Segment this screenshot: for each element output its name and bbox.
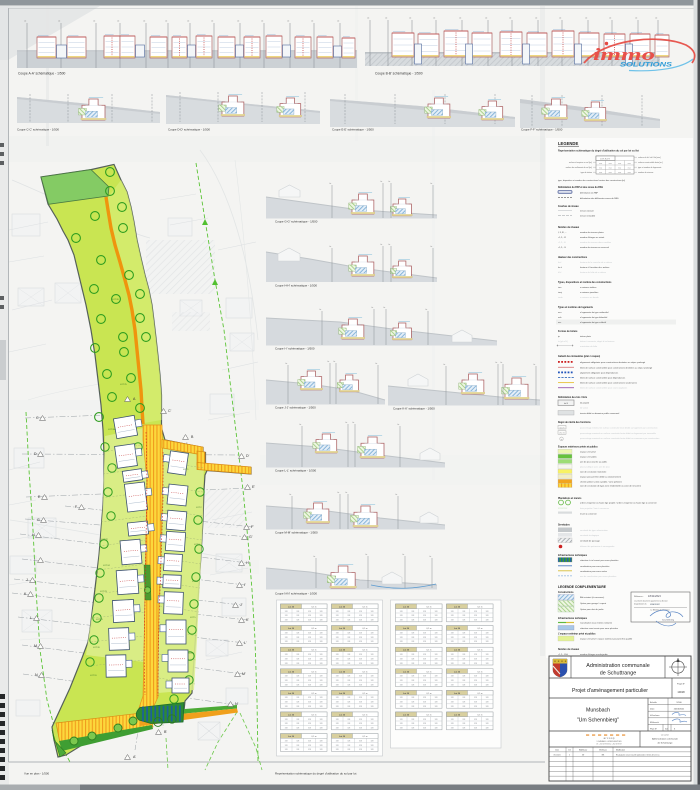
svg-text:328: 328 bbox=[320, 654, 323, 656]
svg-text:328: 328 bbox=[423, 680, 426, 682]
svg-text:Infrastructures techniques: Infrastructures techniques bbox=[558, 617, 588, 620]
svg-text:328: 328 bbox=[296, 745, 299, 747]
svg-text:6,5 m: 6,5 m bbox=[362, 607, 367, 609]
svg-text:terrain remodelé: terrain remodelé bbox=[580, 215, 596, 218]
svg-text:328: 328 bbox=[320, 676, 323, 678]
svg-text:328: 328 bbox=[435, 684, 438, 686]
svg-text:max: max bbox=[618, 172, 621, 174]
svg-text:Date: Date bbox=[555, 749, 559, 752]
svg-text:espace pouvant être dédié au s: espace pouvant être dédié au stationneme… bbox=[580, 476, 621, 479]
svg-text:LOT 22: LOT 22 bbox=[101, 539, 109, 541]
svg-text:328: 328 bbox=[320, 702, 323, 704]
svg-text:328: 328 bbox=[400, 620, 403, 622]
svg-text:328: 328 bbox=[308, 676, 311, 678]
svg-text:Coupe K-K' schématique - 1/500: Coupe K-K' schématique - 1/500 bbox=[393, 407, 435, 411]
svg-text:328: 328 bbox=[320, 684, 323, 686]
svg-text:328: 328 bbox=[347, 723, 350, 725]
svg-text:328: 328 bbox=[423, 637, 426, 639]
svg-text:délimitation du PAP: délimitation du PAP bbox=[580, 192, 599, 195]
svg-text:328: 328 bbox=[462, 723, 465, 725]
svg-text:328: 328 bbox=[308, 697, 311, 699]
svg-text:x% | x%: x% | x% bbox=[559, 433, 565, 435]
svg-text:328: 328 bbox=[400, 684, 403, 686]
svg-text:terrain existant: terrain existant bbox=[580, 210, 594, 213]
svg-text:328: 328 bbox=[347, 684, 350, 686]
svg-text:LOT 6: LOT 6 bbox=[188, 653, 194, 655]
svg-text:328: 328 bbox=[451, 728, 454, 730]
svg-text:328: 328 bbox=[451, 676, 454, 678]
svg-text:328: 328 bbox=[320, 611, 323, 613]
svg-text:I: I bbox=[34, 558, 35, 562]
svg-text:328: 328 bbox=[411, 728, 414, 730]
svg-text:328: 328 bbox=[347, 676, 350, 678]
svg-text:328: 328 bbox=[359, 745, 362, 747]
svg-text:328: 328 bbox=[285, 684, 288, 686]
svg-text:328: 328 bbox=[285, 620, 288, 622]
svg-text:Formes de toiture: Formes de toiture bbox=[558, 330, 578, 333]
svg-text:328: 328 bbox=[336, 706, 339, 708]
svg-text:Coupe D-D' schématique - 1/500: Coupe D-D' schématique - 1/500 bbox=[168, 128, 210, 132]
svg-text:328: 328 bbox=[451, 680, 454, 682]
svg-text:328: 328 bbox=[486, 620, 489, 622]
svg-text:328: 328 bbox=[411, 615, 414, 617]
svg-text:6,5 m: 6,5 m bbox=[426, 671, 431, 673]
svg-text:LOT 4: LOT 4 bbox=[192, 581, 198, 583]
svg-text:328: 328 bbox=[451, 620, 454, 622]
svg-text:Coupe I-I' schématique - 1/500: Coupe I-I' schématique - 1/500 bbox=[275, 347, 315, 351]
svg-text:Lot 26: Lot 26 bbox=[288, 735, 295, 738]
svg-text:chemin piéton / piste cyclable: chemin piéton / piste cyclable / zone pi… bbox=[580, 481, 623, 484]
svg-text:Coupe N-N' schématique - 1/500: Coupe N-N' schématique - 1/500 bbox=[275, 592, 317, 596]
svg-text:6,5 m: 6,5 m bbox=[311, 715, 316, 717]
svg-text:K': K' bbox=[246, 618, 249, 622]
svg-text:6,5 m: 6,5 m bbox=[362, 693, 367, 695]
svg-text:LOT 24: LOT 24 bbox=[103, 565, 111, 567]
svg-text:328: 328 bbox=[285, 706, 288, 708]
svg-text:L': L' bbox=[244, 641, 247, 645]
svg-text:328: 328 bbox=[486, 706, 489, 708]
svg-text:limite de surface constructibl: limite de surface constructible pour con… bbox=[580, 366, 653, 369]
svg-text:328: 328 bbox=[400, 723, 403, 725]
svg-text:axe de canalisation pour eaux: axe de canalisation pour eaux pluviales bbox=[580, 575, 616, 578]
svg-text:328: 328 bbox=[308, 641, 311, 643]
svg-text:328: 328 bbox=[347, 740, 350, 742]
svg-text:328: 328 bbox=[296, 641, 299, 643]
svg-text:328: 328 bbox=[435, 615, 438, 617]
svg-text:328: 328 bbox=[347, 749, 350, 751]
svg-text:328: 328 bbox=[474, 611, 477, 613]
svg-text:6,5 m: 6,5 m bbox=[426, 693, 431, 695]
svg-text:328: 328 bbox=[451, 663, 454, 665]
svg-text:"Um Schennbierg": "Um Schennbierg" bbox=[577, 718, 619, 724]
svg-text:328: 328 bbox=[371, 706, 374, 708]
svg-text:328: 328 bbox=[435, 663, 438, 665]
svg-text:328: 328 bbox=[359, 702, 362, 704]
svg-text:Lot 26: Lot 26 bbox=[339, 627, 346, 630]
svg-text:6,5 m: 6,5 m bbox=[362, 736, 367, 738]
svg-text:328: 328 bbox=[423, 723, 426, 725]
svg-text:328: 328 bbox=[371, 680, 374, 682]
svg-text:XXXXXXX: XXXXXXX bbox=[558, 508, 568, 510]
svg-text:328: 328 bbox=[308, 611, 311, 613]
svg-text:328: 328 bbox=[474, 615, 477, 617]
svg-text:surface de scellement du sol [: surface de scellement du sol [m²] bbox=[566, 166, 593, 169]
svg-text:328: 328 bbox=[435, 697, 438, 699]
svg-text:328: 328 bbox=[462, 654, 465, 656]
svg-text:328: 328 bbox=[462, 697, 465, 699]
svg-text:328: 328 bbox=[462, 615, 465, 617]
svg-text:Délimitation des lots / îlots: Délimitation des lots / îlots bbox=[558, 396, 588, 399]
svg-text:328: 328 bbox=[462, 641, 465, 643]
svg-text:328: 328 bbox=[474, 719, 477, 721]
svg-text:max: max bbox=[618, 163, 621, 165]
svg-text:328: 328 bbox=[451, 637, 454, 639]
svg-text:328: 328 bbox=[451, 719, 454, 721]
svg-text:328: 328 bbox=[347, 632, 350, 634]
svg-text:328: 328 bbox=[320, 706, 323, 708]
svg-text:328: 328 bbox=[347, 697, 350, 699]
svg-text:328: 328 bbox=[486, 702, 489, 704]
svg-text:328: 328 bbox=[423, 697, 426, 699]
svg-text:328: 328 bbox=[435, 676, 438, 678]
svg-text:328: 328 bbox=[474, 684, 477, 686]
svg-text:328: 328 bbox=[336, 702, 339, 704]
svg-text:328: 328 bbox=[462, 728, 465, 730]
svg-text:328: 328 bbox=[359, 697, 362, 699]
svg-text:nombre d'étages en retrait: nombre d'étages en retrait bbox=[580, 236, 605, 239]
svg-text:Types, dispositions et nombre: Types, dispositions et nombre des constr… bbox=[558, 281, 612, 284]
svg-text:x maisons en bande: x maisons en bande bbox=[580, 297, 599, 299]
svg-text:6,5 m: 6,5 m bbox=[426, 628, 431, 630]
svg-text:toiture à versants, degré d in: toiture à versants, degré d inclinaison bbox=[580, 340, 615, 343]
svg-text:nombre de niveaux dans combles: nombre de niveaux dans combles bbox=[580, 241, 611, 244]
svg-text:Lot 26: Lot 26 bbox=[339, 670, 346, 673]
svg-text:328: 328 bbox=[371, 697, 374, 699]
svg-text:328: 328 bbox=[411, 658, 414, 660]
svg-text:328: 328 bbox=[371, 615, 374, 617]
svg-text:ts (y/x x%): ts (y/x x%) bbox=[558, 340, 568, 343]
svg-text:limite de surface constructibl: limite de surface constructible pour dép… bbox=[580, 377, 625, 380]
svg-text:6,5 m: 6,5 m bbox=[311, 671, 316, 673]
svg-text:328: 328 bbox=[296, 620, 299, 622]
svg-text:Lot 26: Lot 26 bbox=[454, 692, 461, 695]
svg-text:Lot 26: Lot 26 bbox=[288, 606, 295, 609]
svg-text:328: 328 bbox=[423, 620, 426, 622]
svg-text:de Schuttrange: de Schuttrange bbox=[600, 671, 637, 677]
svg-text:Lot 26: Lot 26 bbox=[339, 649, 346, 652]
svg-text:Gabarit des immeubles (plan /: Gabarit des immeubles (plan / coupes) bbox=[558, 355, 600, 358]
svg-text:328: 328 bbox=[451, 611, 454, 613]
svg-text:328: 328 bbox=[371, 745, 374, 747]
svg-text:Coupe E-E' schématique - 1/500: Coupe E-E' schématique - 1/500 bbox=[332, 128, 374, 132]
svg-text:lot projeté: lot projeté bbox=[580, 402, 590, 405]
svg-text:328: 328 bbox=[296, 654, 299, 656]
svg-text:servitude de type urbanisation: servitude de type urbanisation bbox=[580, 529, 609, 532]
svg-text:328: 328 bbox=[296, 676, 299, 678]
svg-text:328: 328 bbox=[296, 749, 299, 751]
svg-text:328: 328 bbox=[411, 702, 414, 704]
svg-text:Ind: Ind bbox=[665, 728, 668, 730]
svg-text:x maisons isolées: x maisons isolées bbox=[580, 287, 596, 289]
svg-text:328: 328 bbox=[359, 723, 362, 725]
svg-text:lot voisin: lot voisin bbox=[580, 407, 589, 410]
svg-text:328: 328 bbox=[359, 632, 362, 634]
svg-text:6,5 m: 6,5 m bbox=[362, 650, 367, 652]
svg-text:328: 328 bbox=[320, 749, 323, 751]
svg-text:328: 328 bbox=[400, 615, 403, 617]
svg-text:Vue en plan - 1/500: Vue en plan - 1/500 bbox=[24, 772, 50, 776]
svg-text:328: 328 bbox=[462, 658, 465, 660]
svg-text:Lot 26: Lot 26 bbox=[288, 692, 295, 695]
svg-text:nombre de niveaux pleins: nombre de niveaux pleins bbox=[580, 231, 604, 234]
svg-text:328: 328 bbox=[435, 641, 438, 643]
svg-text:328: 328 bbox=[411, 663, 414, 665]
svg-text:min x%: min x% bbox=[560, 427, 566, 429]
svg-text:M: M bbox=[34, 644, 37, 648]
svg-text:328: 328 bbox=[474, 723, 477, 725]
svg-text:Délimitation du PAP et des zon: Délimitation du PAP et des zones du PAG bbox=[558, 186, 603, 189]
svg-text:pourcentage maximal en surface: pourcentage maximal en surface construit… bbox=[580, 432, 657, 435]
svg-text:x=c: x=c bbox=[558, 322, 561, 324]
svg-text:D': D' bbox=[246, 454, 250, 458]
svg-text:328: 328 bbox=[359, 615, 362, 617]
svg-text:I, II, III, ...: I, II, III, ... bbox=[558, 232, 567, 234]
svg-text:x logements de type unifamilia: x logements de type unifamilial bbox=[580, 311, 609, 314]
svg-text:328: 328 bbox=[400, 706, 403, 708]
svg-text:328: 328 bbox=[435, 654, 438, 656]
svg-text:rétention sous terrain pour ea: rétention sous terrain pour eaux pluvial… bbox=[580, 627, 618, 630]
svg-text:Lot 26: Lot 26 bbox=[288, 714, 295, 717]
svg-text:328: 328 bbox=[347, 702, 350, 704]
svg-text:328: 328 bbox=[423, 684, 426, 686]
svg-text:328: 328 bbox=[451, 632, 454, 634]
svg-text:328: 328 bbox=[285, 723, 288, 725]
svg-text:328: 328 bbox=[411, 676, 414, 678]
svg-text:J': J' bbox=[240, 603, 243, 607]
svg-text:Lot 26: Lot 26 bbox=[454, 670, 461, 673]
svg-text:328: 328 bbox=[371, 719, 374, 721]
svg-text:328: 328 bbox=[285, 719, 288, 721]
svg-text:max: max bbox=[618, 168, 621, 170]
svg-text:328: 328 bbox=[296, 728, 299, 730]
svg-text:328: 328 bbox=[296, 702, 299, 704]
svg-text:328: 328 bbox=[411, 684, 414, 686]
svg-text:328: 328 bbox=[296, 684, 299, 686]
svg-text:328: 328 bbox=[336, 697, 339, 699]
svg-text:6,5 m: 6,5 m bbox=[477, 715, 482, 717]
svg-text:+1,2,...R: +1,2,...R bbox=[558, 237, 566, 239]
svg-text:nombre de niveaux en sous-sol: nombre de niveaux en sous-sol bbox=[580, 246, 609, 249]
svg-text:Lot 26: Lot 26 bbox=[339, 714, 346, 717]
svg-text:328: 328 bbox=[486, 728, 489, 730]
svg-text:328: 328 bbox=[359, 658, 362, 660]
svg-text:Coupe G-G' schématique - 1/500: Coupe G-G' schématique - 1/500 bbox=[275, 220, 318, 224]
svg-text:pourcentage minimal en surface: pourcentage minimal en surface construit… bbox=[580, 427, 658, 430]
svg-text:LOT /ILOT: LOT /ILOT bbox=[600, 159, 610, 161]
svg-text:lot N: lot N bbox=[564, 402, 569, 405]
svg-text:328: 328 bbox=[308, 663, 311, 665]
svg-text:Bâti existant (à conserver): Bâti existant (à conserver) bbox=[580, 596, 604, 599]
svg-text:328: 328 bbox=[336, 676, 339, 678]
svg-text:type de toiture: type de toiture bbox=[581, 171, 592, 174]
svg-text:328: 328 bbox=[486, 697, 489, 699]
svg-text:6,5 m: 6,5 m bbox=[311, 693, 316, 695]
svg-text:328: 328 bbox=[308, 706, 311, 708]
svg-text:328: 328 bbox=[400, 663, 403, 665]
svg-text:D: D bbox=[34, 452, 37, 456]
svg-text:328: 328 bbox=[320, 697, 323, 699]
svg-text:328: 328 bbox=[474, 620, 477, 622]
svg-text:LOT 25: LOT 25 bbox=[120, 384, 128, 386]
svg-text:328: 328 bbox=[320, 719, 323, 721]
svg-text:328: 328 bbox=[474, 706, 477, 708]
svg-text:Courbes de niveau: Courbes de niveau bbox=[558, 206, 579, 208]
svg-text:hauteur du faîte de x mètres: hauteur du faîte de x mètres bbox=[580, 271, 606, 274]
svg-text:Coupe B-B' schématique - 1/500: Coupe B-B' schématique - 1/500 bbox=[375, 72, 423, 76]
svg-text:H: H bbox=[32, 533, 35, 537]
svg-text:orientation du faîte: orientation du faîte bbox=[580, 345, 598, 348]
svg-text:328: 328 bbox=[285, 745, 288, 747]
svg-text:328: 328 bbox=[336, 728, 339, 730]
svg-text:place publique avec aire de je: place publique avec aire de jeux bbox=[580, 466, 611, 469]
svg-text:328: 328 bbox=[400, 676, 403, 678]
svg-text:type et nombre de logements: type et nombre de logements bbox=[638, 166, 661, 169]
svg-text:328: 328 bbox=[285, 654, 288, 656]
svg-text:328: 328 bbox=[347, 745, 350, 747]
svg-text:328: 328 bbox=[474, 676, 477, 678]
svg-text:6,5 m: 6,5 m bbox=[477, 671, 482, 673]
svg-text:328: 328 bbox=[359, 706, 362, 708]
svg-text:328: 328 bbox=[320, 632, 323, 634]
svg-text:servitude écologique: servitude écologique bbox=[580, 534, 600, 537]
svg-text:328: 328 bbox=[423, 615, 426, 617]
svg-text:328: 328 bbox=[308, 749, 311, 751]
svg-text:328: 328 bbox=[411, 611, 414, 613]
svg-text:328: 328 bbox=[336, 654, 339, 656]
svg-text:328: 328 bbox=[435, 632, 438, 634]
svg-text:328: 328 bbox=[462, 611, 465, 613]
svg-text:6,5 m: 6,5 m bbox=[362, 628, 367, 630]
svg-text:328: 328 bbox=[320, 663, 323, 665]
svg-text:328: 328 bbox=[336, 719, 339, 721]
svg-text:328: 328 bbox=[347, 728, 350, 730]
svg-text:328: 328 bbox=[486, 658, 489, 660]
svg-text:328: 328 bbox=[285, 680, 288, 682]
svg-text:toiture plate: toiture plate bbox=[580, 335, 592, 338]
svg-text:LOT 20: LOT 20 bbox=[93, 647, 101, 649]
svg-text:328: 328 bbox=[400, 702, 403, 704]
svg-text:328: 328 bbox=[359, 749, 362, 751]
svg-text:6,5 m: 6,5 m bbox=[311, 628, 316, 630]
svg-text:6,5 m: 6,5 m bbox=[311, 650, 316, 652]
svg-text:328: 328 bbox=[320, 637, 323, 639]
svg-text:28/4/2022: 28/4/2022 bbox=[649, 603, 661, 606]
svg-text:328: 328 bbox=[347, 641, 350, 643]
svg-text:6,5 m: 6,5 m bbox=[311, 607, 316, 609]
svg-text:328: 328 bbox=[320, 740, 323, 742]
svg-text:328: 328 bbox=[296, 723, 299, 725]
svg-text:Canalisation eaux mixtes exist: Canalisation eaux mixtes existante bbox=[580, 622, 613, 625]
svg-text:328: 328 bbox=[359, 654, 362, 656]
svg-text:328: 328 bbox=[296, 706, 299, 708]
svg-text:328: 328 bbox=[320, 620, 323, 622]
svg-text:M': M' bbox=[242, 672, 246, 676]
svg-text:328: 328 bbox=[359, 663, 362, 665]
svg-text:de Schuttrange: de Schuttrange bbox=[658, 742, 674, 745]
svg-text:328: 328 bbox=[371, 676, 374, 678]
svg-text:Option pour abri de jardin: Option pour abri de jardin bbox=[580, 608, 604, 611]
svg-text:328: 328 bbox=[308, 654, 311, 656]
svg-text:328: 328 bbox=[359, 728, 362, 730]
svg-text:espace vert public: espace vert public bbox=[580, 456, 597, 459]
svg-text:Lot 26: Lot 26 bbox=[288, 627, 295, 630]
svg-text:Degré de mixité des fonctions: Degré de mixité des fonctions bbox=[558, 421, 591, 424]
svg-text:Lot 26: Lot 26 bbox=[288, 649, 295, 652]
svg-text:328: 328 bbox=[336, 658, 339, 660]
svg-text:328: 328 bbox=[423, 676, 426, 678]
svg-text:328: 328 bbox=[308, 728, 311, 730]
svg-text:328: 328 bbox=[435, 680, 438, 682]
svg-text:328: 328 bbox=[400, 654, 403, 656]
svg-text:328: 328 bbox=[474, 641, 477, 643]
svg-text:328: 328 bbox=[285, 632, 288, 634]
svg-text:328: 328 bbox=[359, 740, 362, 742]
svg-text:B': B' bbox=[164, 730, 167, 734]
svg-text:muret à conserver: muret à conserver bbox=[580, 513, 597, 516]
svg-text:328: 328 bbox=[400, 637, 403, 639]
svg-text:servitude de passage: servitude de passage bbox=[580, 539, 601, 542]
svg-text:+1,2,...S: +1,2,...S bbox=[558, 247, 566, 249]
svg-text:328: 328 bbox=[411, 723, 414, 725]
svg-text:328: 328 bbox=[336, 749, 339, 751]
svg-text:rétention à ciel ouvert pour e: rétention à ciel ouvert pour eaux pluvia… bbox=[580, 559, 618, 562]
svg-text:328: 328 bbox=[296, 663, 299, 665]
svg-text:328: 328 bbox=[411, 680, 414, 682]
svg-text:LOT 2: LOT 2 bbox=[196, 507, 202, 509]
svg-text:Lot 26: Lot 26 bbox=[454, 606, 461, 609]
svg-text:328: 328 bbox=[336, 740, 339, 742]
svg-text:Hauteur des constructions: Hauteur des constructions bbox=[558, 256, 588, 259]
svg-text:328: 328 bbox=[486, 611, 489, 613]
svg-text:328: 328 bbox=[347, 620, 350, 622]
svg-text:328: 328 bbox=[308, 615, 311, 617]
svg-text:328: 328 bbox=[435, 637, 438, 639]
svg-text:Ind: Ind bbox=[568, 750, 570, 752]
svg-text:Coupe C-C' schématique - 1/500: Coupe C-C' schématique - 1/500 bbox=[17, 128, 59, 132]
svg-text:Lot 26: Lot 26 bbox=[339, 606, 346, 609]
svg-text:i=mj: i=mj bbox=[558, 292, 562, 294]
svg-text:limite de surface constructibl: limite de surface constructible pour con… bbox=[580, 382, 637, 385]
svg-text:Nombre de niveaux: Nombre de niveaux bbox=[558, 227, 580, 229]
svg-text:x logements de type collectif: x logements de type collectif bbox=[580, 321, 607, 324]
svg-text:328: 328 bbox=[296, 680, 299, 682]
svg-text:Administration communale: Administration communale bbox=[586, 663, 650, 669]
svg-text:328: 328 bbox=[400, 719, 403, 721]
svg-text:328: 328 bbox=[400, 641, 403, 643]
svg-text:328: 328 bbox=[336, 663, 339, 665]
svg-text:328: 328 bbox=[371, 632, 374, 634]
svg-text:328: 328 bbox=[371, 641, 374, 643]
svg-text:328: 328 bbox=[462, 684, 465, 686]
svg-text:328: 328 bbox=[486, 684, 489, 686]
svg-text:328: 328 bbox=[411, 637, 414, 639]
svg-text:Coupe M-M' schématique - 1/500: Coupe M-M' schématique - 1/500 bbox=[275, 531, 318, 535]
svg-text:Lot 26: Lot 26 bbox=[454, 714, 461, 717]
svg-text:L'espace extérieur privé et pu: L'espace extérieur privé et publics bbox=[558, 633, 596, 636]
svg-text:328: 328 bbox=[296, 637, 299, 639]
svg-text:6,5 m: 6,5 m bbox=[426, 607, 431, 609]
svg-text:Projet N°: Projet N° bbox=[677, 683, 685, 686]
